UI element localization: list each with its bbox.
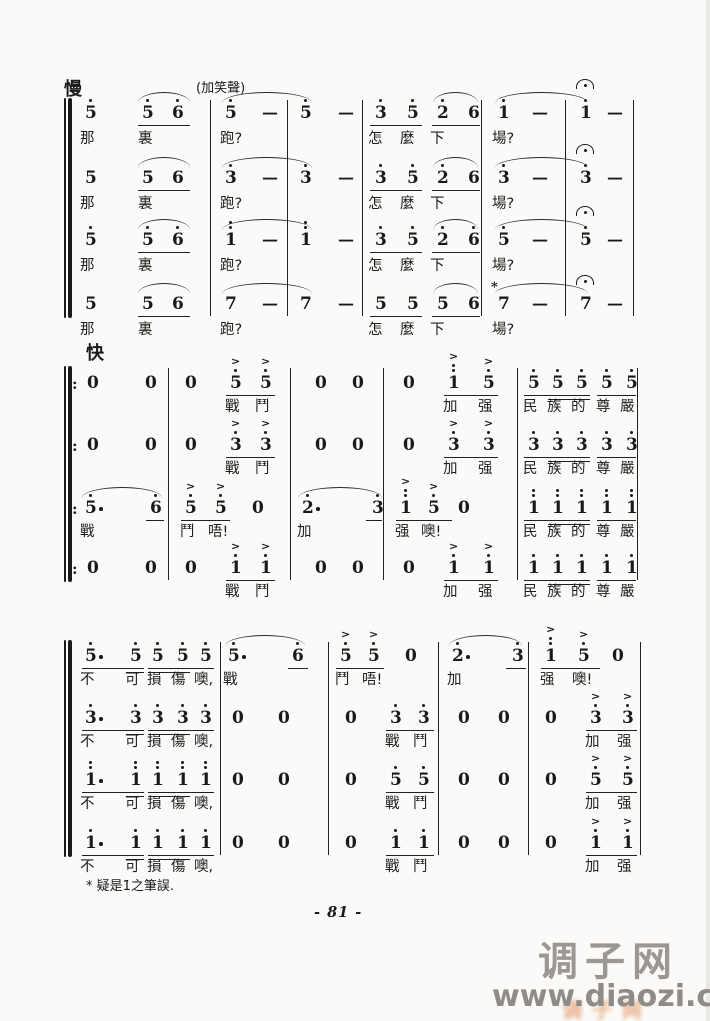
lyric-syllable: 可 — [125, 672, 140, 688]
octave-dot — [452, 369, 455, 372]
beam-line — [370, 252, 422, 253]
accent-icon: > — [401, 478, 410, 487]
beam-line — [432, 190, 480, 191]
note-digit: 5 — [437, 296, 449, 313]
note-digit: 3 — [483, 437, 495, 454]
dash-extension: — — [532, 105, 548, 120]
beam-line — [586, 730, 637, 731]
accent-icon: > — [341, 631, 350, 640]
octave-dot — [580, 369, 583, 372]
beam-line — [432, 252, 480, 253]
octave-dot — [549, 642, 552, 645]
lyric-syllable: 裏 — [138, 196, 153, 212]
beam-line — [396, 520, 452, 521]
note-digit: 5 — [200, 648, 212, 665]
lyric-syllable: 下 — [430, 131, 445, 147]
note-digit: 1 — [177, 772, 189, 789]
rest-note: 0 — [545, 772, 557, 789]
octave-dot — [580, 554, 583, 557]
beam-line — [226, 457, 275, 458]
note-digit: 1 — [576, 560, 588, 577]
note-digit: 5 — [580, 232, 592, 249]
tie-slur — [433, 219, 478, 230]
rest-note: 0 — [278, 772, 290, 789]
tie-slur — [222, 219, 312, 230]
octave-dot — [394, 704, 397, 707]
rest-note: 0 — [278, 835, 290, 852]
octave-dot — [379, 164, 382, 167]
octave-dot — [134, 704, 137, 707]
note-digit: 3 — [601, 437, 613, 454]
footnote: * 疑是1̇之筆誤. — [86, 879, 174, 894]
beam-line — [386, 855, 434, 856]
note-digit: 3 — [130, 710, 142, 727]
augmentation-dot — [316, 507, 320, 511]
beam-line — [226, 580, 275, 581]
lyric-syllable: 不 — [80, 859, 95, 875]
note-digit: 5 — [142, 232, 154, 249]
lyric-syllable: 損 — [147, 859, 162, 875]
beam-line — [370, 190, 422, 191]
lyric-syllable: 噢! — [572, 672, 592, 688]
note-digit: 3 — [225, 170, 237, 187]
note-digit: 7 — [300, 296, 312, 313]
dash-extension: — — [338, 296, 354, 311]
note-digit: 1 — [390, 835, 402, 852]
note-digit: 3 — [622, 710, 634, 727]
lyric-syllable: 裏 — [138, 258, 153, 274]
lyric-syllable: 噢, — [194, 734, 213, 750]
octave-dot — [411, 226, 414, 229]
octave-dot — [156, 642, 159, 645]
octave-dot — [404, 494, 407, 497]
beam-line — [148, 668, 214, 669]
note-digit: 5 — [483, 375, 495, 392]
lyric-syllable: 可 — [125, 796, 140, 812]
beam-line — [82, 855, 144, 856]
tie-slur — [225, 635, 305, 646]
note-digit: 1 — [622, 835, 634, 852]
note-digit: 1 — [576, 500, 588, 517]
note-digit: 5 — [142, 296, 154, 313]
lyric-syllable: 噢, — [194, 859, 213, 875]
accent-icon: > — [231, 420, 240, 429]
lyric-syllable: 損 — [147, 796, 162, 812]
octave-dot — [422, 766, 425, 769]
beam-line — [148, 730, 214, 731]
repeat-colon: : — [72, 439, 78, 453]
note-digit: 6 — [468, 232, 480, 249]
rest-note: 0 — [458, 835, 470, 852]
note-digit: 6 — [468, 170, 480, 187]
note-digit: 5 — [528, 375, 540, 392]
lyric-syllable: 民 — [523, 461, 538, 477]
octave-dot — [156, 829, 159, 832]
beam-line — [586, 855, 637, 856]
octave-dot — [264, 431, 267, 434]
lyric-syllable: 族 — [547, 399, 562, 415]
octave-dot — [379, 99, 382, 102]
octave-dot — [89, 99, 92, 102]
note-digit: 5 — [626, 375, 638, 392]
dash-extension: — — [532, 296, 548, 311]
lyric-syllable: 戰 — [225, 584, 240, 600]
note-digit: 1 — [552, 560, 564, 577]
octave-dot — [630, 554, 633, 557]
lyric-syllable: 場? — [492, 131, 514, 147]
octave-dot — [89, 761, 92, 764]
note-digit: 5 — [152, 648, 164, 665]
tie-slur — [82, 487, 162, 498]
rest-note: 0 — [458, 772, 470, 789]
octave-dot — [594, 829, 597, 832]
octave-dot — [580, 489, 583, 492]
lyric-syllable: 裏 — [138, 322, 153, 338]
beam-line — [288, 668, 308, 669]
tie-slur — [138, 219, 190, 230]
dash-extension: — — [607, 296, 623, 311]
rest-note: 0 — [185, 560, 197, 577]
lyric-syllable: 唔! — [208, 524, 228, 540]
note-digit: 1 — [130, 772, 142, 789]
note-digit: 1 — [545, 648, 557, 665]
beam-line — [524, 580, 590, 581]
lyric-syllable: 跑? — [220, 196, 242, 212]
lyric-syllable: 麼 — [400, 322, 415, 338]
lyric-syllable: 族 — [547, 524, 562, 540]
lyric-syllable: 噢, — [194, 672, 213, 688]
augmentation-dot — [99, 779, 103, 783]
note-digit: 3 — [512, 648, 524, 665]
barline — [637, 368, 638, 580]
lyric-syllable: 怎 — [368, 131, 383, 147]
octave-dot — [556, 494, 559, 497]
rest-note: 0 — [87, 560, 99, 577]
octave-dot — [181, 766, 184, 769]
beam-line — [226, 395, 275, 396]
accent-icon: > — [484, 420, 493, 429]
lyric-syllable: 那 — [80, 196, 95, 212]
note-digit: 7 — [580, 296, 592, 313]
sheet-music-page: 慢 (加笑聲) 快 5565—5—35261—1—那裏跑?怎麼下場?5563—3… — [0, 0, 710, 1021]
barline — [383, 368, 384, 580]
note-digit: 5 — [85, 500, 97, 517]
lyric-syllable: 下 — [430, 196, 445, 212]
beam-line — [597, 520, 636, 521]
octave-dot — [605, 554, 608, 557]
lyric-syllable: 鬥 — [255, 399, 270, 415]
rest-note: 0 — [405, 648, 417, 665]
note-digit: 5 — [142, 170, 154, 187]
beam-line — [444, 580, 498, 581]
note-digit: 5 — [85, 105, 97, 122]
lyric-syllable: 傷 — [171, 859, 186, 875]
lyric-syllable: 加 — [447, 672, 462, 688]
rest-note: 0 — [232, 710, 244, 727]
repeat-colon: : — [72, 377, 78, 391]
lyric-syllable: 下 — [430, 258, 445, 274]
octave-dot — [234, 554, 237, 557]
octave-dot — [134, 642, 137, 645]
lyric-syllable: 戰 — [225, 461, 240, 477]
beam-line — [524, 520, 590, 521]
augmentation-dot — [466, 655, 470, 659]
dash-extension: — — [262, 296, 278, 311]
accent-icon: > — [623, 818, 632, 827]
octave-dot — [532, 431, 535, 434]
beam-line — [138, 316, 190, 317]
octave-dot — [532, 554, 535, 557]
octave-dot — [556, 369, 559, 372]
barline — [328, 642, 329, 855]
note-digit: 2 — [452, 648, 464, 665]
lyric-syllable: 加 — [443, 461, 458, 477]
octave-dot — [432, 494, 435, 497]
rest-note: 0 — [315, 375, 327, 392]
octave-dot — [181, 704, 184, 707]
note-digit: 5 — [85, 232, 97, 249]
note-digit: 5 — [225, 105, 237, 122]
lyric-syllable: 下 — [430, 322, 445, 338]
lyric-syllable: 民 — [523, 524, 538, 540]
note-digit: 2 — [437, 105, 449, 122]
note-digit: 3 — [498, 170, 510, 187]
beam-line — [181, 520, 230, 521]
barline — [481, 100, 482, 316]
watermark-site-url: www.diaozi.com — [492, 981, 710, 1013]
accent-icon: > — [579, 631, 588, 640]
rest-note: 0 — [345, 772, 357, 789]
dash-extension: — — [262, 105, 278, 120]
octave-dot — [549, 637, 552, 640]
octave-dot — [181, 761, 184, 764]
octave-dot — [204, 766, 207, 769]
lyric-syllable: 加 — [585, 796, 600, 812]
augmentation-dot — [99, 842, 103, 846]
rest-note: 0 — [352, 560, 364, 577]
note-digit: 5 — [407, 232, 419, 249]
dash-extension: — — [338, 170, 354, 185]
accent-icon: > — [449, 543, 458, 552]
octave-dot — [204, 761, 207, 764]
augmentation-dot — [242, 655, 246, 659]
note-digit: 1 — [528, 500, 540, 517]
note-digit: 1 — [130, 835, 142, 852]
rest-note: 0 — [458, 710, 470, 727]
lyric-syllable: 怎 — [368, 196, 383, 212]
accent-icon: > — [449, 420, 458, 429]
rest-note: 0 — [278, 710, 290, 727]
barline — [438, 642, 439, 855]
note-digit: 5 — [418, 772, 430, 789]
rest-note: 0 — [545, 710, 557, 727]
note-digit: 5 — [390, 772, 402, 789]
note-digit: 3 — [626, 437, 638, 454]
octave-dot — [89, 766, 92, 769]
octave-dot — [605, 369, 608, 372]
note-digit: 1 — [580, 105, 592, 122]
lyric-syllable: 怎 — [368, 258, 383, 274]
lyric-syllable: 嚴 — [620, 461, 635, 477]
octave-dot — [630, 489, 633, 492]
octave-dot — [189, 494, 192, 497]
accent-icon: > — [261, 420, 270, 429]
lyric-syllable: 鬥 — [335, 672, 350, 688]
rest-note: 0 — [352, 437, 364, 454]
note-digit: 3 — [448, 437, 460, 454]
rest-note: 0 — [403, 375, 415, 392]
octave-dot — [556, 489, 559, 492]
barline — [210, 100, 211, 316]
octave-dot — [394, 766, 397, 769]
beam-line — [138, 190, 190, 191]
note-digit: 3 — [375, 105, 387, 122]
lyric-syllable: 强 — [617, 796, 632, 812]
note-digit: 1 — [626, 500, 638, 517]
system-bracket — [68, 640, 72, 857]
octave-dot — [605, 431, 608, 434]
tie-slur — [495, 283, 588, 294]
note-digit: 6 — [172, 296, 184, 313]
lyric-syllable: 加 — [443, 584, 458, 600]
lyric-syllable: 强 — [478, 584, 493, 600]
dash-extension: — — [607, 105, 623, 120]
octave-dot — [626, 766, 629, 769]
augmentation-dot — [99, 655, 103, 659]
rest-note: 0 — [498, 710, 510, 727]
octave-dot — [234, 431, 237, 434]
rest-note: 0 — [498, 835, 510, 852]
note-digit: 1 — [552, 500, 564, 517]
lyric-syllable: 的 — [571, 399, 586, 415]
octave-dot — [532, 369, 535, 372]
repeat-colon: : — [72, 502, 78, 516]
beam-line — [524, 457, 590, 458]
beam-line — [586, 792, 637, 793]
accent-icon: > — [261, 358, 270, 367]
beam-line — [148, 855, 214, 856]
note-digit: 1 — [152, 835, 164, 852]
rest-note: 0 — [232, 772, 244, 789]
note-digit: 5 — [601, 375, 613, 392]
note-digit: 5 — [130, 648, 142, 665]
lyric-syllable: 强 — [617, 859, 632, 875]
beam-line — [82, 730, 144, 731]
lyric-syllable: 那 — [80, 258, 95, 274]
accent-icon: > — [449, 353, 458, 362]
rest-note: 0 — [145, 375, 157, 392]
lyric-syllable: 强 — [617, 734, 632, 750]
note-digit: 3 — [552, 437, 564, 454]
rest-note: 0 — [145, 437, 157, 454]
dash-extension: — — [338, 105, 354, 120]
rest-note: 0 — [232, 835, 244, 852]
accent-icon: > — [546, 626, 555, 635]
note-digit: 5 — [407, 105, 419, 122]
note-digit: 5 — [300, 105, 312, 122]
octave-dot — [89, 642, 92, 645]
beam-line — [82, 668, 144, 669]
octave-dot — [487, 554, 490, 557]
system-bracket — [64, 98, 66, 318]
fermata-icon — [576, 79, 594, 91]
dash-extension: — — [262, 232, 278, 247]
lyric-syllable: 噢, — [194, 796, 213, 812]
note-digit: 5 — [260, 375, 272, 392]
note-digit: 1 — [85, 772, 97, 789]
accent-icon: > — [623, 693, 632, 702]
note-digit: 1 — [200, 835, 212, 852]
lyric-syllable: 加 — [585, 734, 600, 750]
accent-icon: > — [484, 543, 493, 552]
barline — [290, 368, 291, 580]
lyric-syllable: 麼 — [400, 196, 415, 212]
beam-line — [541, 668, 600, 669]
octave-dot — [219, 494, 222, 497]
note-digit: 3 — [260, 437, 272, 454]
octave-dot — [156, 766, 159, 769]
tie-slur — [449, 635, 522, 646]
note-digit: 5 — [368, 648, 380, 665]
accent-icon: > — [216, 483, 225, 492]
note-digit: 2 — [437, 232, 449, 249]
lyric-syllable: 尊 — [596, 399, 611, 415]
dash-extension: — — [338, 232, 354, 247]
dash-extension: — — [607, 232, 623, 247]
footnote-text: 疑是1̇之筆誤. — [97, 879, 174, 894]
barline — [633, 100, 634, 316]
dash-extension: — — [607, 170, 623, 185]
note-digit: 6 — [468, 296, 480, 313]
note-digit: 7 — [498, 296, 510, 313]
beam-line — [386, 730, 434, 731]
rest-note: 0 — [315, 560, 327, 577]
note-digit: 5 — [228, 648, 240, 665]
beam-line — [506, 668, 526, 669]
octave-dot — [626, 704, 629, 707]
lyric-syllable: 不 — [80, 734, 95, 750]
note-digit: 5 — [498, 232, 510, 249]
octave-dot — [556, 431, 559, 434]
note-digit: 5 — [85, 170, 97, 187]
note-digit: 6 — [172, 170, 184, 187]
note-digit: 2 — [437, 170, 449, 187]
lyric-syllable: 强 — [540, 672, 555, 688]
tie-slur — [138, 92, 190, 103]
lyric-syllable: 戰 — [223, 672, 238, 688]
note-digit: 3 — [418, 710, 430, 727]
lyric-syllable: 鬥 — [413, 734, 428, 750]
note-digit: 6 — [292, 648, 304, 665]
accent-icon: > — [591, 693, 600, 702]
note-digit: 3 — [177, 710, 189, 727]
lyric-syllable: 不 — [80, 672, 95, 688]
note-digit: 3 — [152, 710, 164, 727]
note-digit: 1 — [300, 232, 312, 249]
watermark-site-name: 调子网 — [538, 941, 679, 983]
note-digit: 6 — [150, 500, 162, 517]
tie-slur — [138, 283, 190, 294]
lyric-syllable: 傷 — [171, 672, 186, 688]
octave-dot — [264, 369, 267, 372]
octave-dot — [204, 829, 207, 832]
beam-line — [444, 395, 498, 396]
note-digit: 5 — [142, 105, 154, 122]
beam-line — [146, 520, 164, 521]
octave-dot — [134, 829, 137, 832]
note-digit: 5 — [340, 648, 352, 665]
beam-line — [386, 792, 434, 793]
